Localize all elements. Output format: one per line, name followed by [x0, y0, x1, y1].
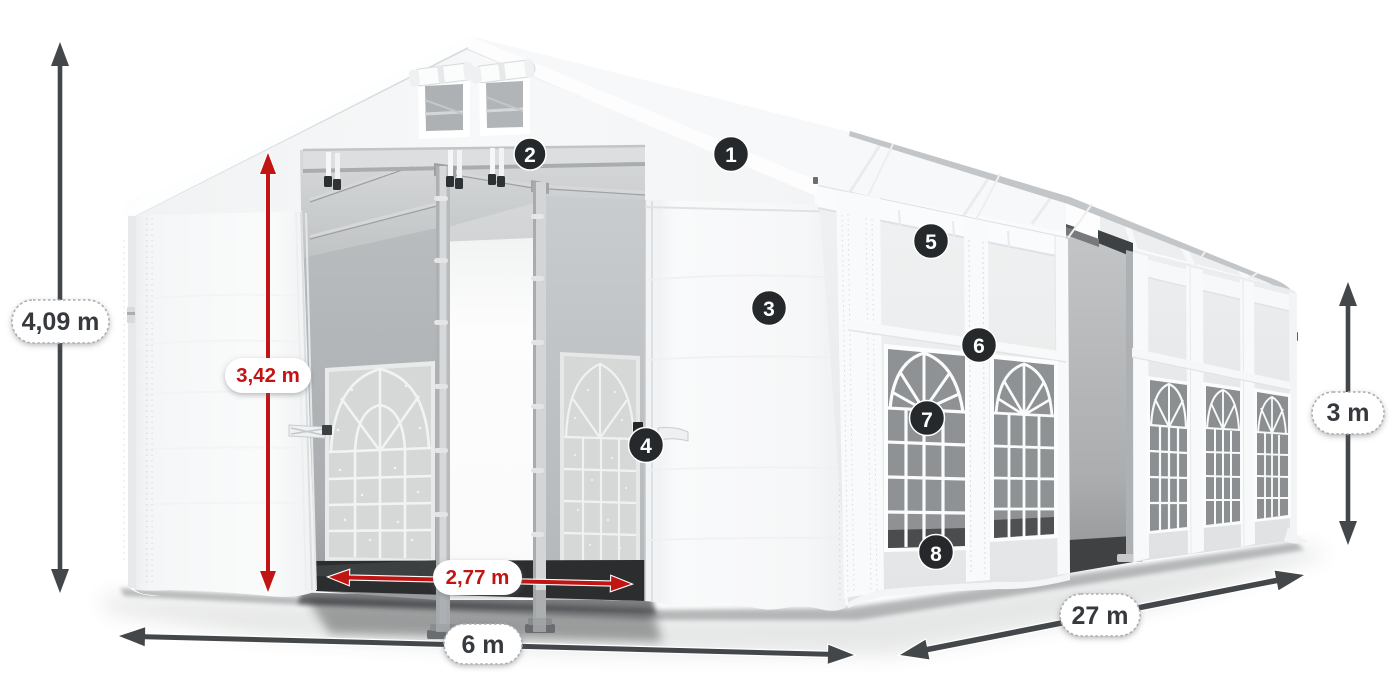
svg-text:2: 2	[524, 144, 536, 167]
svg-text:4,09 m: 4,09 m	[22, 308, 100, 336]
svg-text:1: 1	[725, 144, 737, 167]
svg-text:7: 7	[921, 409, 933, 432]
svg-text:2,77 m: 2,77 m	[446, 566, 510, 589]
svg-text:27 m: 27 m	[1072, 602, 1129, 630]
svg-text:3,42 m: 3,42 m	[236, 364, 300, 387]
svg-text:8: 8	[930, 543, 942, 566]
svg-text:3: 3	[763, 298, 775, 321]
svg-text:6: 6	[973, 335, 985, 358]
svg-text:3 m: 3 m	[1326, 399, 1369, 427]
svg-text:5: 5	[925, 231, 937, 254]
svg-text:6 m: 6 m	[461, 631, 504, 659]
svg-text:4: 4	[640, 435, 652, 458]
